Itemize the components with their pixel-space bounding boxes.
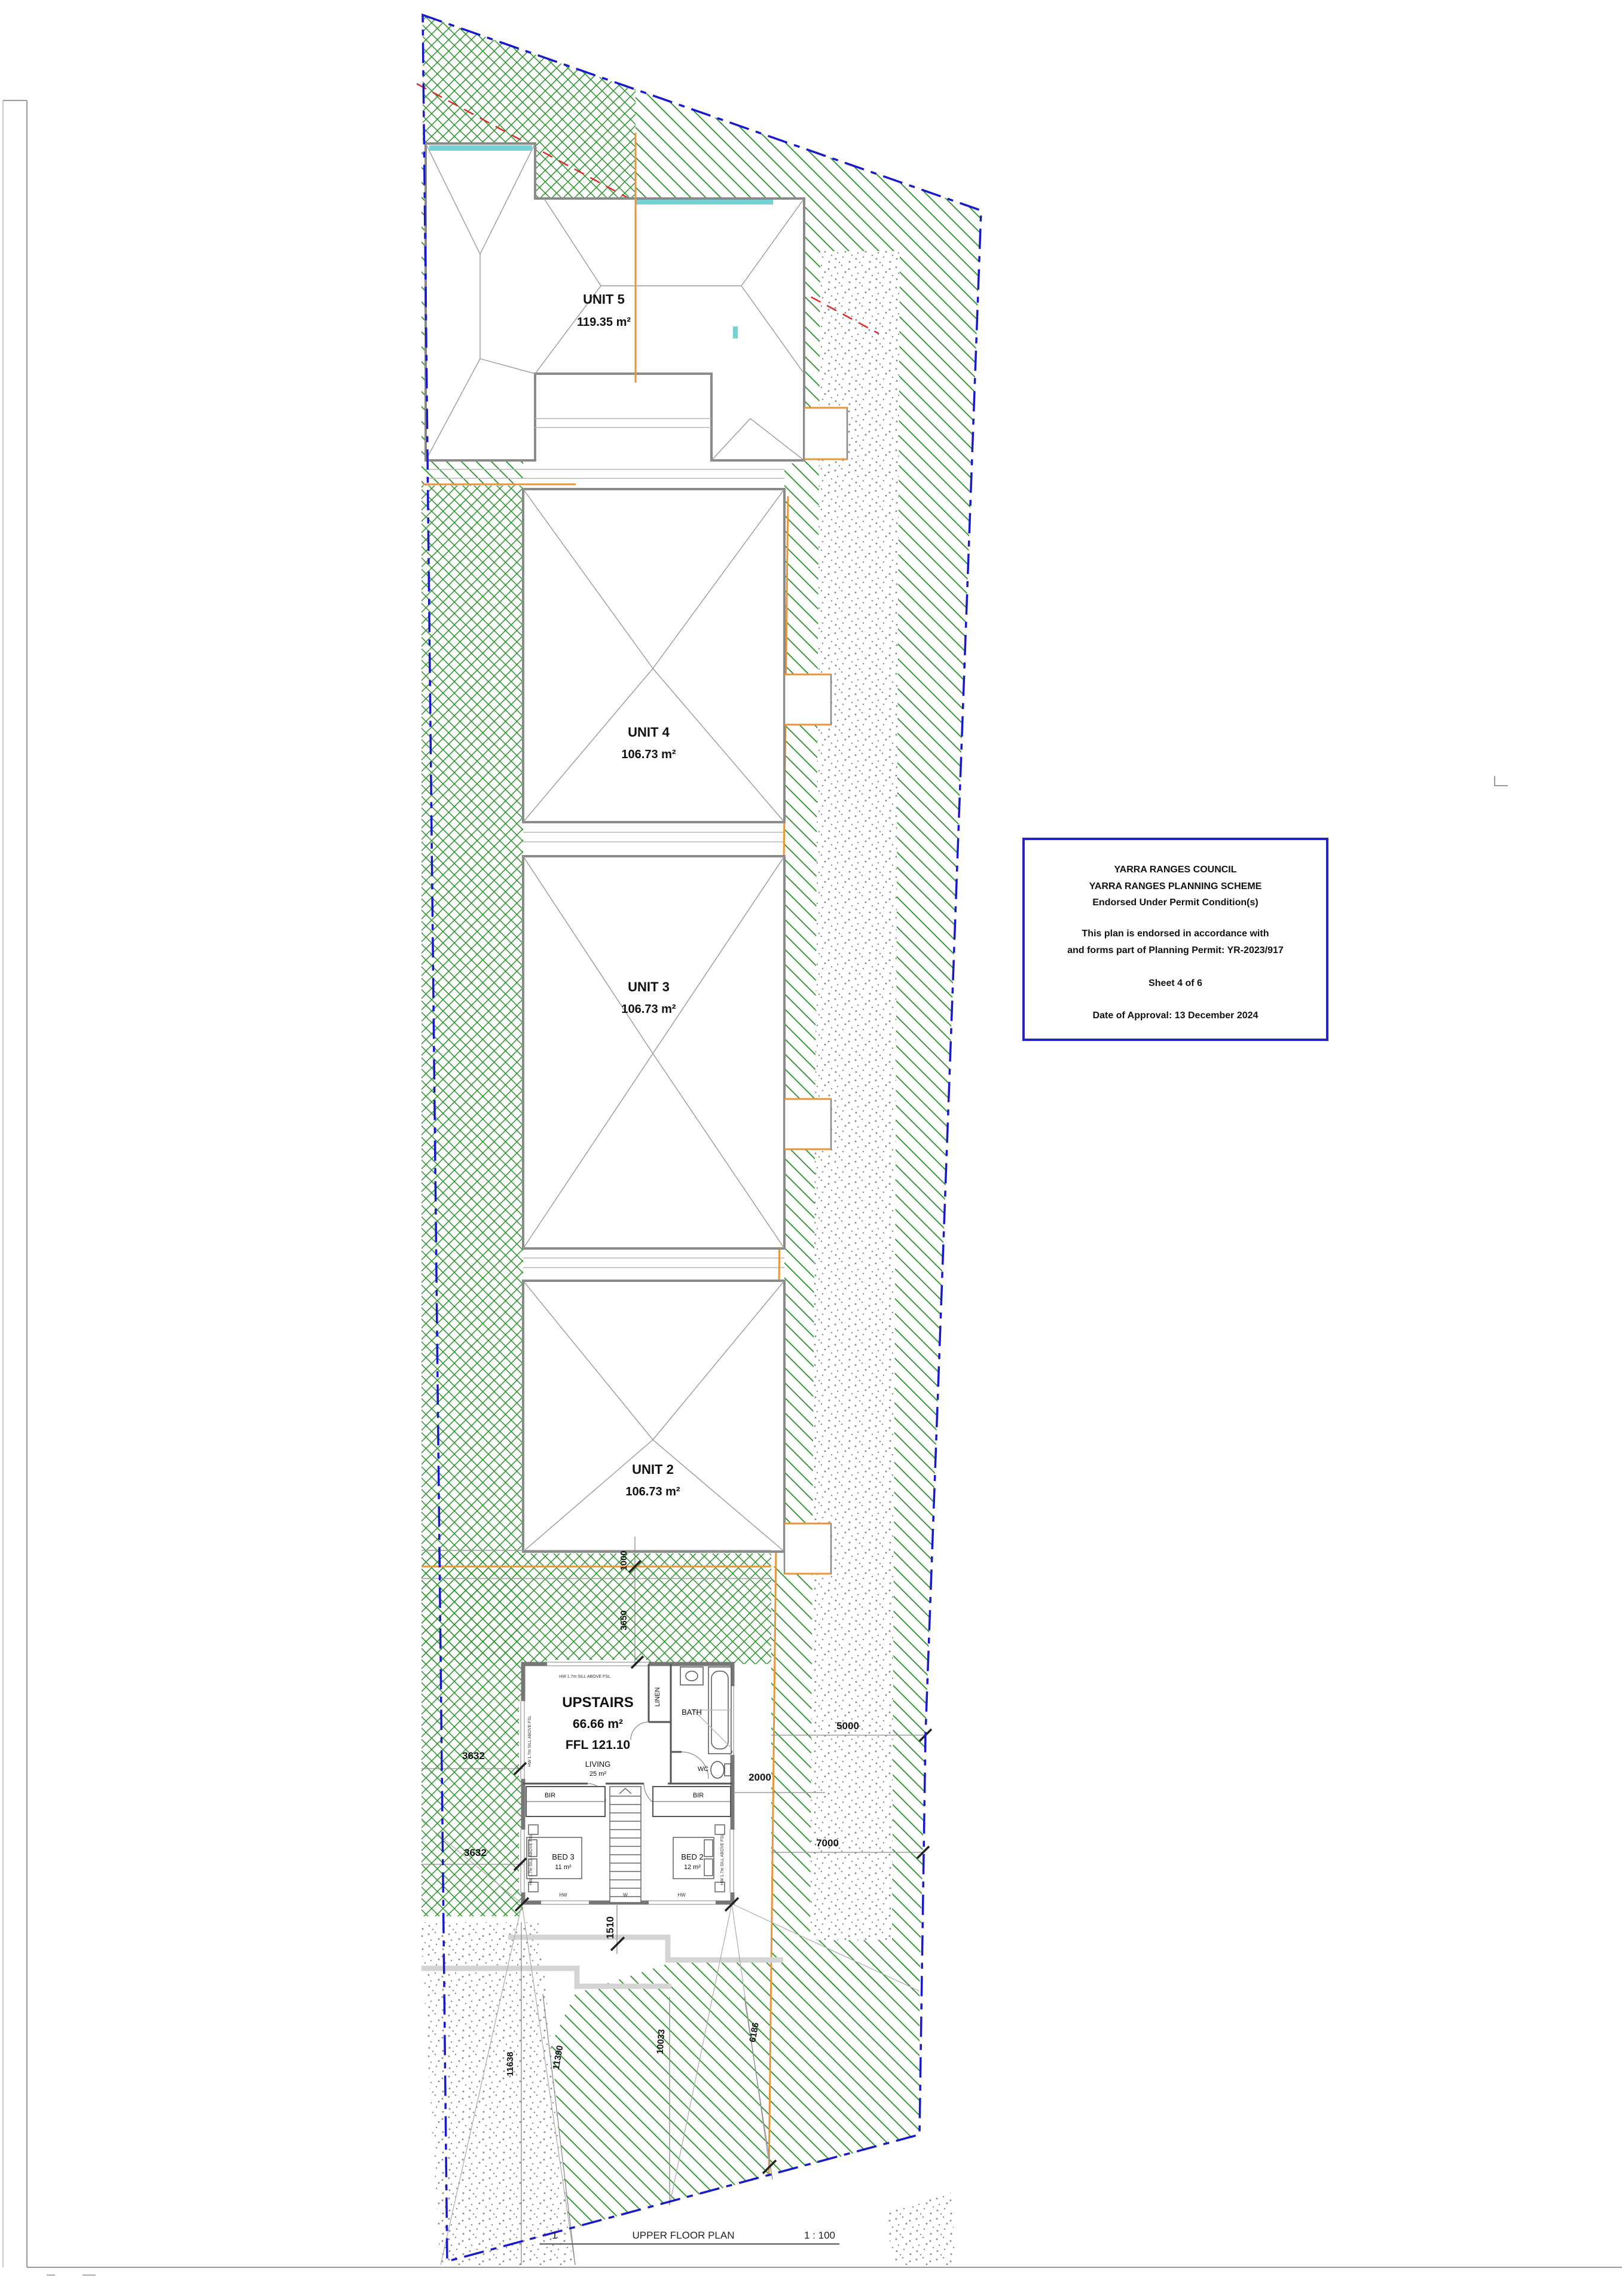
unit3-porch xyxy=(784,1099,831,1149)
unit3-roof xyxy=(523,856,784,1248)
dim-1000: 1000 xyxy=(619,1550,629,1570)
unit4-area: 106.73 m² xyxy=(621,748,676,761)
unit4-roof xyxy=(523,489,784,822)
bed3-label: BED 3 xyxy=(552,1852,575,1861)
drawing-sheet: UNIT 5 119.35 m² UNIT 4 106.73 m² xyxy=(0,0,1622,2296)
stamp-line-5: and forms part of Planning Permit: YR-20… xyxy=(1067,945,1284,955)
unit5-porch xyxy=(804,408,847,459)
bir-right-label: BIR xyxy=(693,1792,704,1799)
dim-3632-b: 3632 xyxy=(464,1847,487,1858)
hw-right: HW xyxy=(677,1892,686,1898)
unit3-area: 106.73 m² xyxy=(621,1003,676,1016)
bed2-area: 12 m² xyxy=(684,1864,701,1871)
stamp-line-2: YARRA RANGES PLANNING SCHEME xyxy=(1089,881,1262,891)
dim-2000: 2000 xyxy=(749,1772,771,1783)
unit5-label: UNIT 5 xyxy=(583,292,625,307)
sill-note-bed-left: HW 1.7m SILL ABOVE FSL xyxy=(529,1834,533,1885)
wc-label: WC xyxy=(698,1766,708,1773)
stamp-line-3: Endorsed Under Permit Condition(s) xyxy=(1092,897,1258,908)
unit2-label: UNIT 2 xyxy=(632,1462,674,1477)
dim-7000: 7000 xyxy=(816,1837,839,1849)
upstairs-floor-plan: UPSTAIRS 66.66 m² FFL 121.10 LIVING 25 m… xyxy=(519,1660,737,1907)
drawing-number: 1 xyxy=(552,2230,557,2241)
unit2-roof xyxy=(523,1281,784,1552)
drawing-title: UPPER FLOOR PLAN xyxy=(633,2230,735,2241)
frame-corner-mark xyxy=(1495,776,1508,786)
unit3-label: UNIT 3 xyxy=(628,979,670,994)
stamp-line-6: Sheet 4 of 6 xyxy=(1148,978,1202,988)
sill-note-left: HW 1.7m SILL ABOVE FSL xyxy=(528,1715,532,1767)
living-area: 25 m² xyxy=(589,1770,606,1778)
dim-3632-a: 3632 xyxy=(462,1750,485,1761)
sill-note-bed-right: HW 1.7m SILL ABOVE FSL xyxy=(720,1834,725,1885)
hw-left: HW xyxy=(559,1892,567,1898)
stamp-line-4: This plan is endorsed in accordance with xyxy=(1082,929,1269,939)
dim-10033: 10033 xyxy=(655,2029,667,2054)
linen-label: LINEN xyxy=(654,1687,661,1706)
approval-stamp: YARRA RANGES COUNCIL YARRA RANGES PLANNI… xyxy=(1024,839,1327,1040)
staircase xyxy=(610,1787,641,1903)
w-mid: W xyxy=(623,1892,628,1898)
bed3-area: 11 m² xyxy=(555,1864,572,1871)
drawing-scale: 1 : 100 xyxy=(804,2230,835,2241)
site-plan-svg: UNIT 5 119.35 m² UNIT 4 106.73 m² xyxy=(0,0,1622,2296)
dim-3650: 3650 xyxy=(619,1610,629,1630)
unit5-area: 119.35 m² xyxy=(577,316,631,329)
bir-left-label: BIR xyxy=(545,1792,555,1799)
living-label: LIVING xyxy=(585,1760,611,1769)
dim-1510: 1510 xyxy=(604,1916,616,1939)
dim-5000: 5000 xyxy=(836,1720,859,1732)
toilet xyxy=(711,1761,724,1778)
bed2-label: BED 2 xyxy=(681,1852,704,1861)
dim-11638: 11638 xyxy=(505,2052,515,2077)
stamp-line-7: Date of Approval: 13 December 2024 xyxy=(1093,1010,1258,1021)
bath-label: BATH xyxy=(682,1708,702,1717)
sill-note-top: HW 1.7m SILL ABOVE FSL xyxy=(559,1675,610,1679)
upstairs-ffl: FFL 121.10 xyxy=(566,1738,630,1752)
drawing-title-block: 1 UPPER FLOOR PLAN 1 : 100 xyxy=(540,2230,839,2244)
upstairs-label: UPSTAIRS xyxy=(562,1694,634,1711)
stamp-line-1: YARRA RANGES COUNCIL xyxy=(1114,865,1236,875)
unit4-label: UNIT 4 xyxy=(628,725,670,740)
unit4-porch xyxy=(784,674,831,725)
unit2-area: 106.73 m² xyxy=(625,1485,680,1498)
unit2-porch xyxy=(784,1523,831,1574)
upstairs-area: 66.66 m² xyxy=(573,1717,623,1731)
